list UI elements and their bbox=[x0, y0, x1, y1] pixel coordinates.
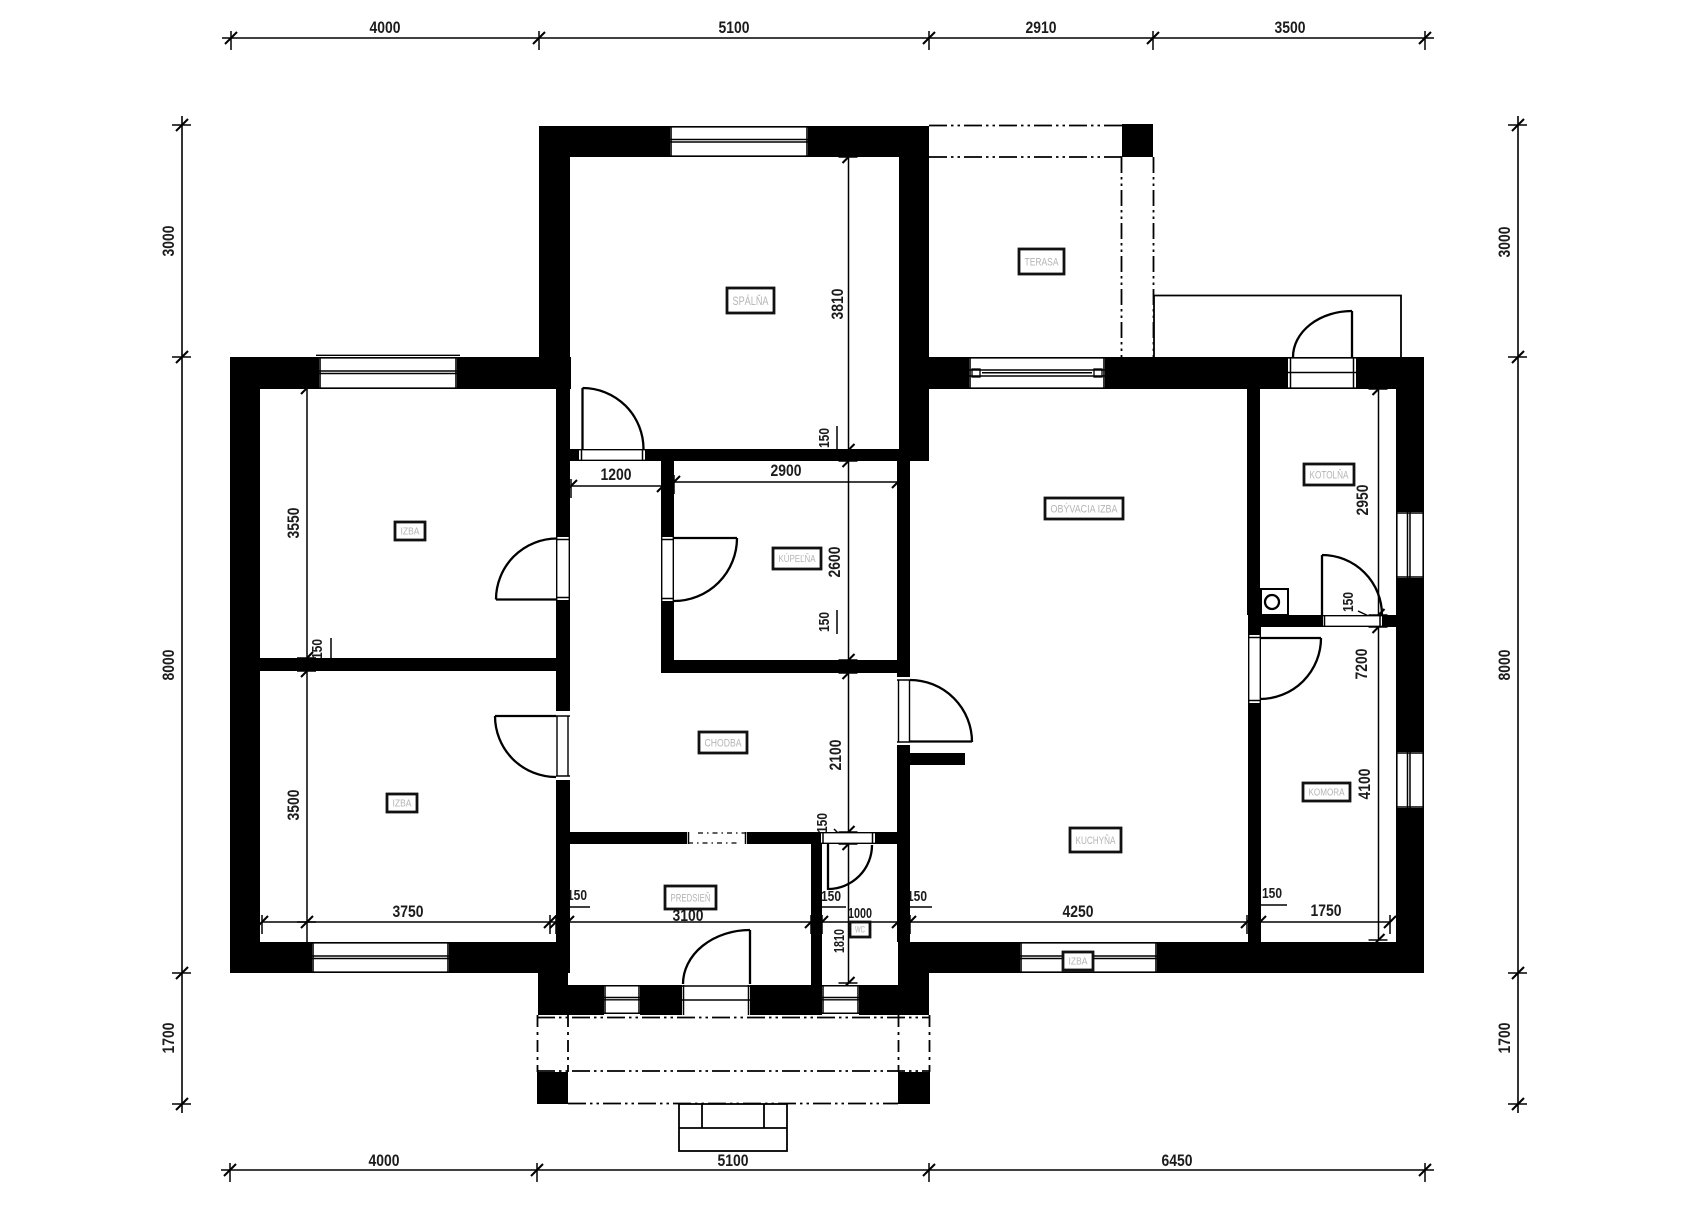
svg-text:150: 150 bbox=[1262, 886, 1282, 902]
svg-text:150: 150 bbox=[817, 612, 833, 632]
svg-text:1750: 1750 bbox=[1311, 901, 1342, 920]
svg-text:4250: 4250 bbox=[1063, 902, 1094, 921]
svg-text:IZBA: IZBA bbox=[393, 799, 412, 810]
svg-text:3500: 3500 bbox=[284, 790, 303, 821]
svg-text:2950: 2950 bbox=[1353, 485, 1372, 516]
svg-text:3750: 3750 bbox=[393, 902, 424, 921]
svg-text:4000: 4000 bbox=[370, 18, 401, 37]
svg-text:2100: 2100 bbox=[826, 740, 845, 771]
svg-text:6450: 6450 bbox=[1162, 1151, 1193, 1170]
svg-text:KÚPEĽŇA: KÚPEĽŇA bbox=[779, 552, 816, 565]
svg-text:3000: 3000 bbox=[159, 226, 178, 257]
svg-text:3810: 3810 bbox=[828, 289, 847, 320]
svg-text:150: 150 bbox=[817, 428, 833, 448]
svg-text:5100: 5100 bbox=[718, 1151, 749, 1170]
svg-text:1200: 1200 bbox=[601, 465, 632, 484]
svg-text:150: 150 bbox=[1341, 592, 1357, 612]
svg-text:1700: 1700 bbox=[159, 1023, 178, 1054]
svg-text:150: 150 bbox=[821, 889, 841, 905]
svg-text:1700: 1700 bbox=[1495, 1023, 1514, 1054]
svg-text:2910: 2910 bbox=[1026, 18, 1057, 37]
svg-text:IZBA: IZBA bbox=[1069, 957, 1088, 968]
svg-text:SPÁLŇA: SPÁLŇA bbox=[733, 293, 769, 308]
svg-text:3500: 3500 bbox=[1275, 18, 1306, 37]
svg-text:1810: 1810 bbox=[832, 929, 848, 953]
svg-text:150: 150 bbox=[815, 813, 831, 833]
svg-text:2900: 2900 bbox=[771, 461, 802, 480]
svg-text:150: 150 bbox=[310, 639, 326, 659]
svg-text:1000: 1000 bbox=[848, 906, 872, 922]
svg-text:WC: WC bbox=[855, 925, 865, 935]
svg-text:OBÝVACIA IZBA: OBÝVACIA IZBA bbox=[1051, 502, 1119, 515]
svg-text:KOTOLŇA: KOTOLŇA bbox=[1310, 468, 1349, 481]
svg-text:3550: 3550 bbox=[284, 508, 303, 539]
svg-text:8000: 8000 bbox=[159, 650, 178, 681]
svg-text:2600: 2600 bbox=[825, 547, 844, 578]
svg-text:TERASA: TERASA bbox=[1025, 256, 1060, 268]
svg-text:IZBA: IZBA bbox=[401, 527, 420, 538]
svg-text:8000: 8000 bbox=[1495, 650, 1514, 681]
svg-text:4000: 4000 bbox=[369, 1151, 400, 1170]
svg-text:7200: 7200 bbox=[1352, 649, 1371, 680]
svg-text:3000: 3000 bbox=[1495, 227, 1514, 258]
svg-text:KUCHYŇA: KUCHYŇA bbox=[1076, 834, 1116, 847]
svg-text:CHODBA: CHODBA bbox=[705, 737, 743, 749]
svg-text:KOMORA: KOMORA bbox=[1309, 788, 1345, 799]
svg-text:4100: 4100 bbox=[1355, 769, 1374, 800]
svg-text:5100: 5100 bbox=[719, 18, 750, 37]
svg-text:PREDSIEŇ: PREDSIEŇ bbox=[671, 891, 711, 904]
